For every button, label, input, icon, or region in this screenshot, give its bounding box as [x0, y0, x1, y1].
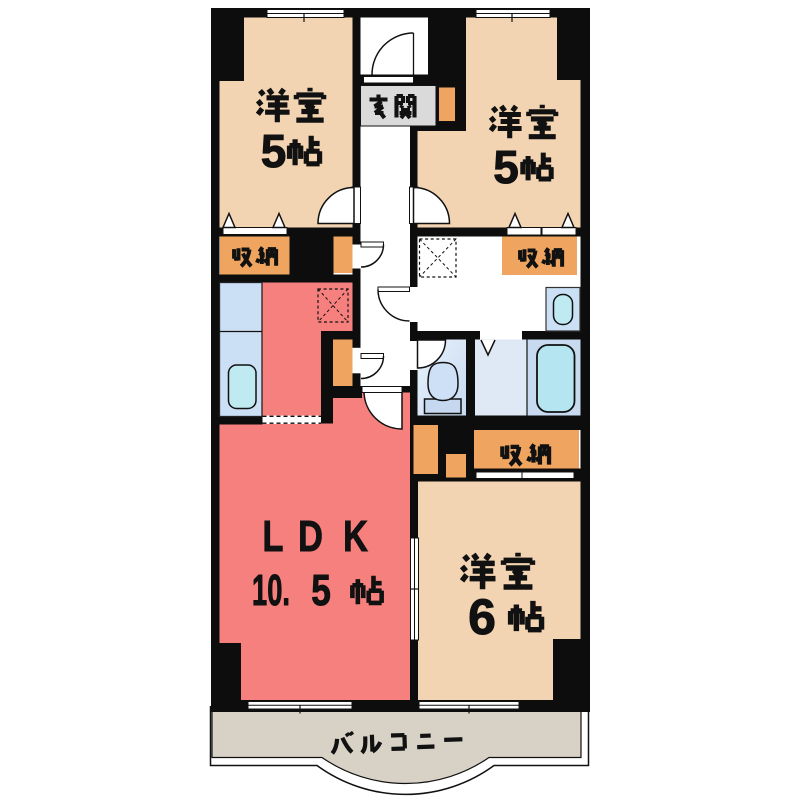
- svg-text:D: D: [298, 512, 323, 561]
- svg-text:6: 6: [468, 589, 496, 645]
- svg-text:10.: 10.: [252, 565, 290, 614]
- svg-text:5: 5: [261, 125, 287, 177]
- svg-text:L: L: [263, 512, 284, 561]
- svg-text:5: 5: [311, 566, 331, 615]
- svg-text:K: K: [343, 512, 368, 561]
- svg-text:5: 5: [493, 141, 519, 193]
